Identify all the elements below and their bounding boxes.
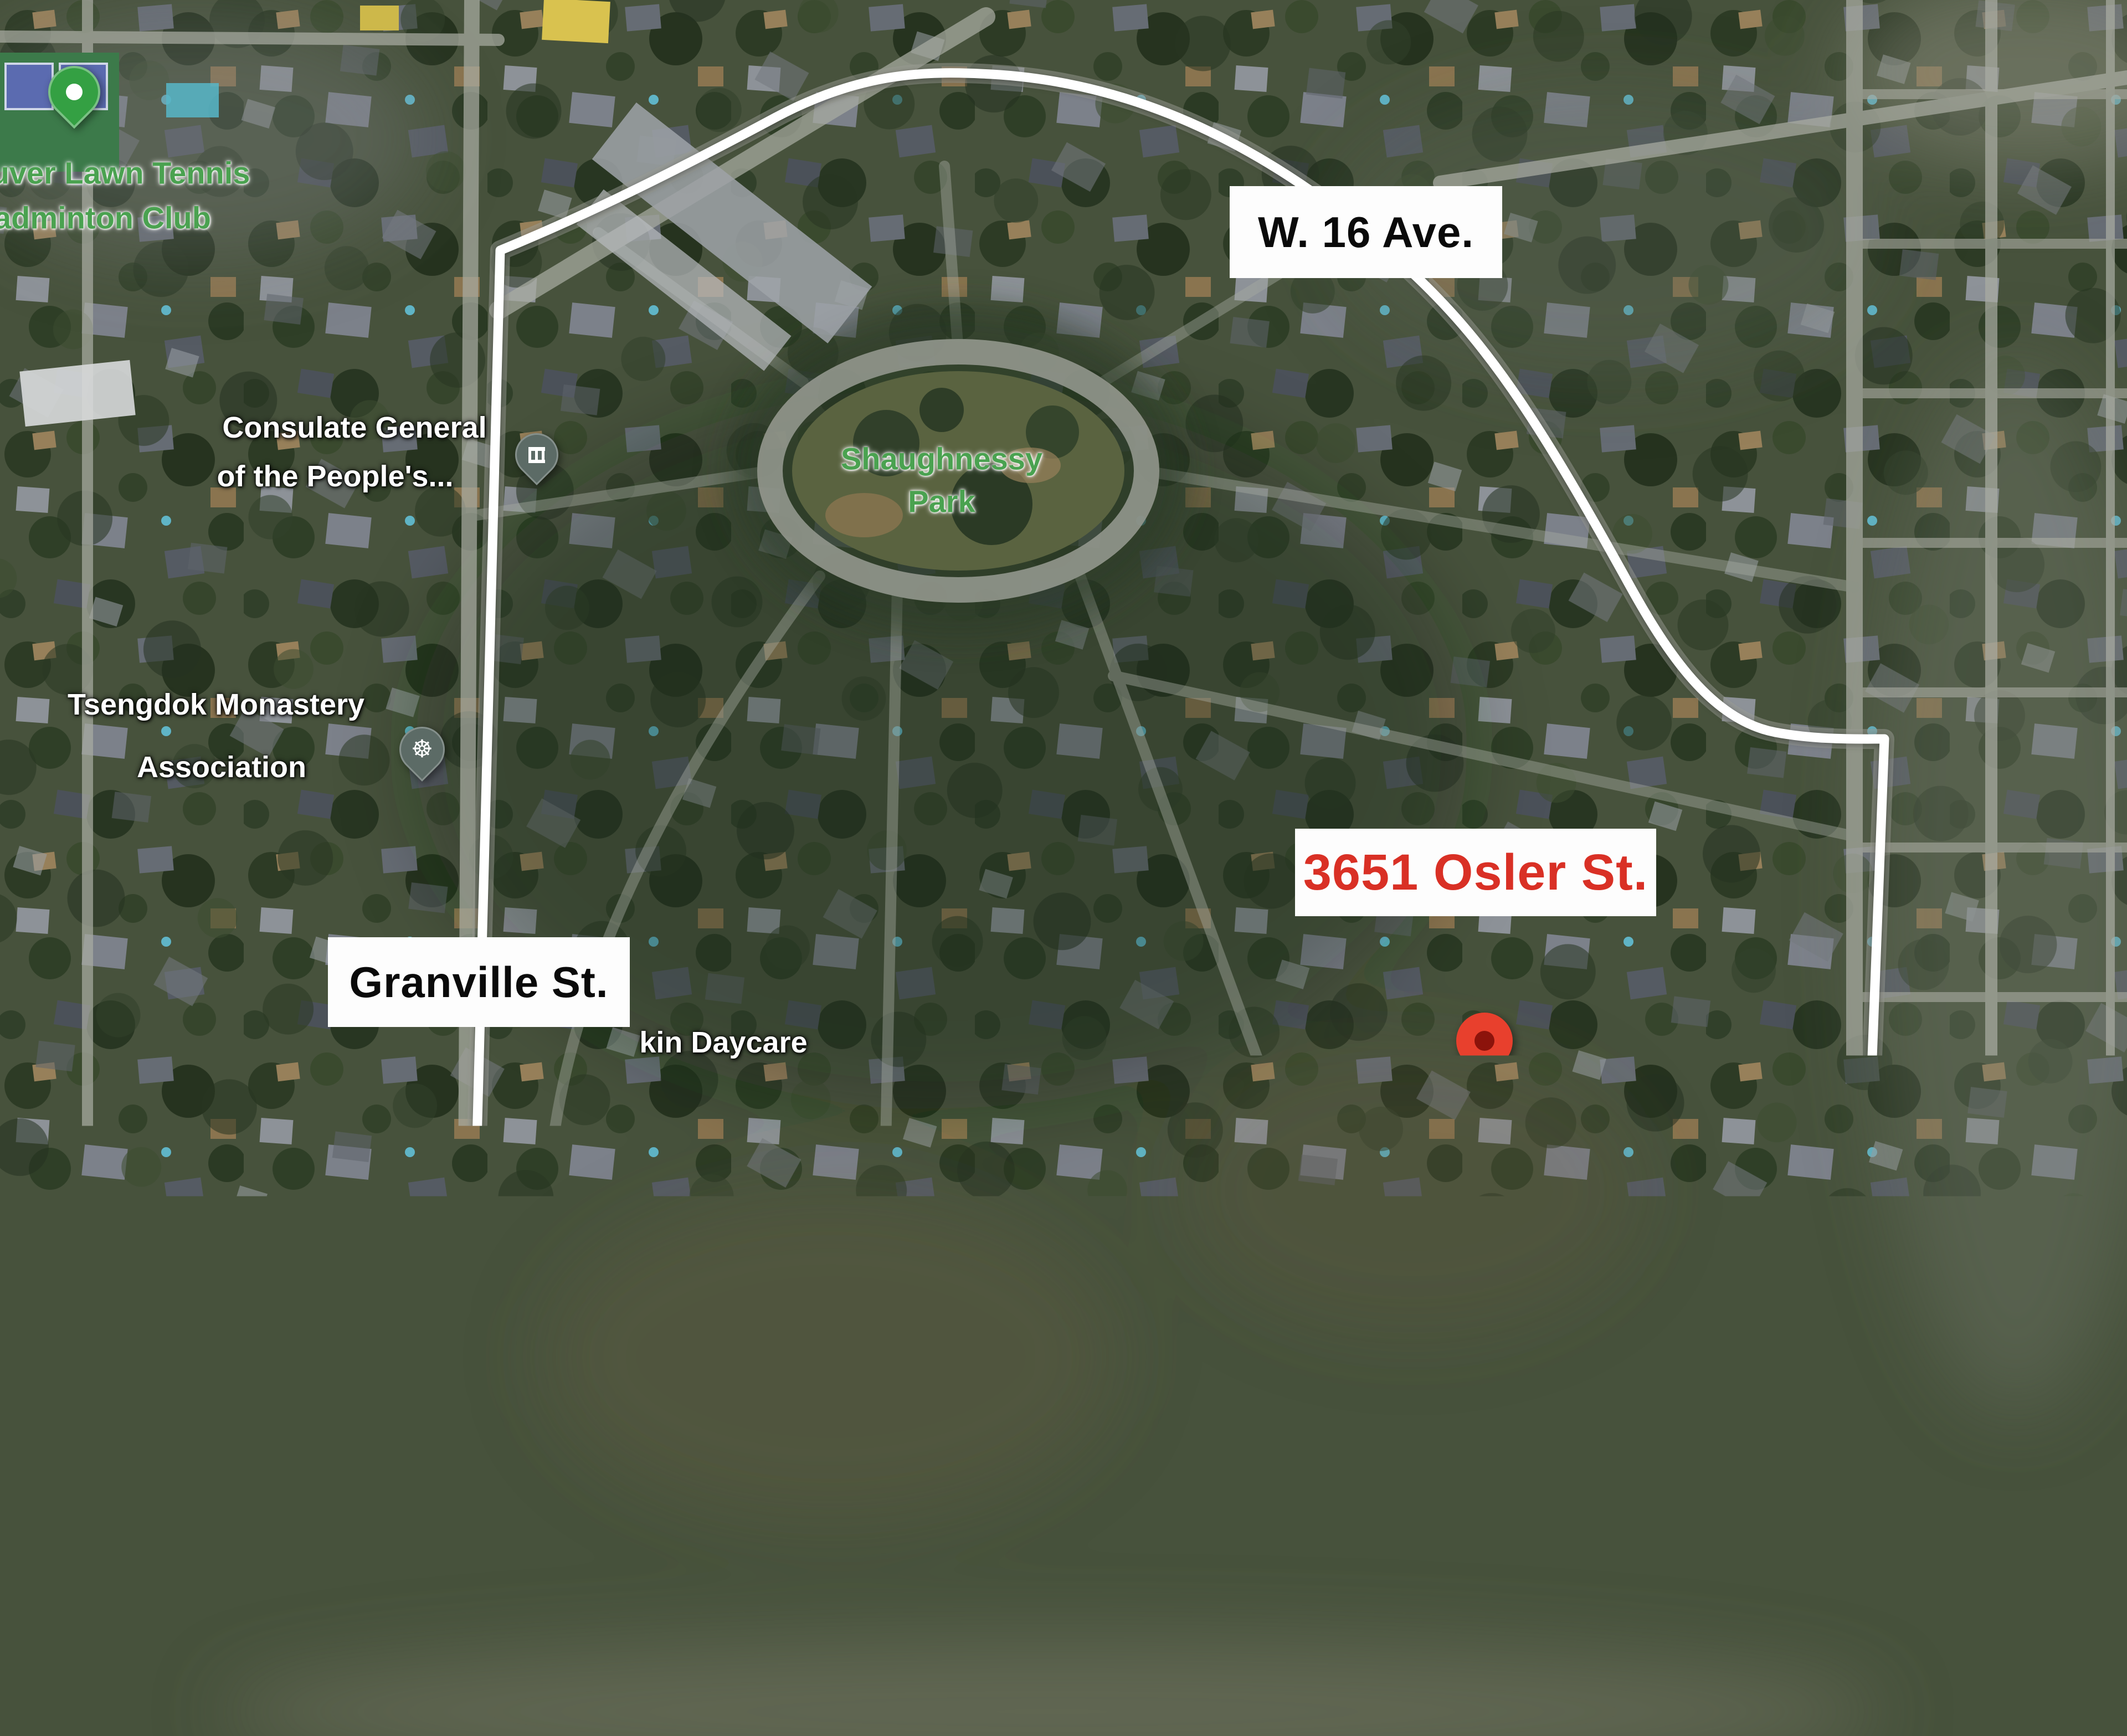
church-label-line2[interactable]: Lutheran Church <box>231 1328 472 1362</box>
school-bottom-pin[interactable] <box>171 1693 228 1736</box>
tennis-club-label-line2[interactable]: adminton Club <box>0 200 211 236</box>
daycare-pin[interactable] <box>598 1164 656 1221</box>
consulate-pin[interactable] <box>508 426 566 484</box>
granville-text: Granville St. <box>349 957 608 1008</box>
school-right-label-line2[interactable]: Elementary <box>1963 1461 2124 1495</box>
park-label-line2[interactable]: Park <box>908 484 975 520</box>
monastery-label-line2[interactable]: Association <box>137 750 306 784</box>
school-bottom-label[interactable]: se School <box>1 1692 142 1726</box>
green-pin-icon <box>38 55 111 129</box>
church-pin-icon <box>491 1287 555 1351</box>
tennis-club-pin[interactable] <box>40 58 109 126</box>
daycare-pin-icon <box>597 1162 657 1223</box>
annotated-satellite-map: uver Lawn Tennis adminton Club Consulate… <box>0 0 2127 1736</box>
consulate-label-line1[interactable]: Consulate General <box>222 410 486 445</box>
school-pin-icon <box>169 1691 230 1736</box>
school-right-pin[interactable] <box>1881 1429 1939 1487</box>
king-edward-text: W. King Edward <box>913 1615 1306 1673</box>
park-label-line1[interactable]: Shaughnessy <box>841 441 1042 477</box>
tennis-club-label-line1[interactable]: uver Lawn Tennis <box>0 155 250 191</box>
church-label-line1[interactable]: Redeemer <box>282 1271 427 1305</box>
w16-ave-text: W. 16 Ave. <box>1258 207 1474 258</box>
consulate-label-line2[interactable]: of the People's... <box>217 459 454 494</box>
church-pin[interactable] <box>492 1288 553 1349</box>
property-address-text: 3651 Osler St. <box>1303 844 1648 902</box>
property-address-label: 3651 Osler St. <box>1295 829 1656 916</box>
street-label-king-edward: W. King Edward <box>904 1601 1315 1687</box>
monastery-pin[interactable]: ☸ <box>392 719 453 780</box>
school-pin-icon <box>1879 1427 1940 1488</box>
satellite-terrain <box>0 0 2127 1736</box>
monastery-label-line1[interactable]: Tsengdok Monastery <box>68 687 364 722</box>
property-pin[interactable] <box>1444 1000 1525 1081</box>
street-label-granville: Granville St. <box>328 937 630 1027</box>
museum-pin-icon <box>506 424 567 485</box>
school-right-label-line1[interactable]: Emily C <box>2010 1422 2120 1456</box>
dharma-pin-icon <box>390 717 454 782</box>
daycare-label[interactable]: kin Daycare <box>639 1025 807 1060</box>
red-pin-icon <box>1445 1001 1524 1081</box>
oak-text: Oak St. <box>1783 1088 1936 1138</box>
street-label-w16-ave: W. 16 Ave. <box>1230 186 1502 278</box>
street-label-oak: Oak St. <box>1768 1069 1951 1157</box>
